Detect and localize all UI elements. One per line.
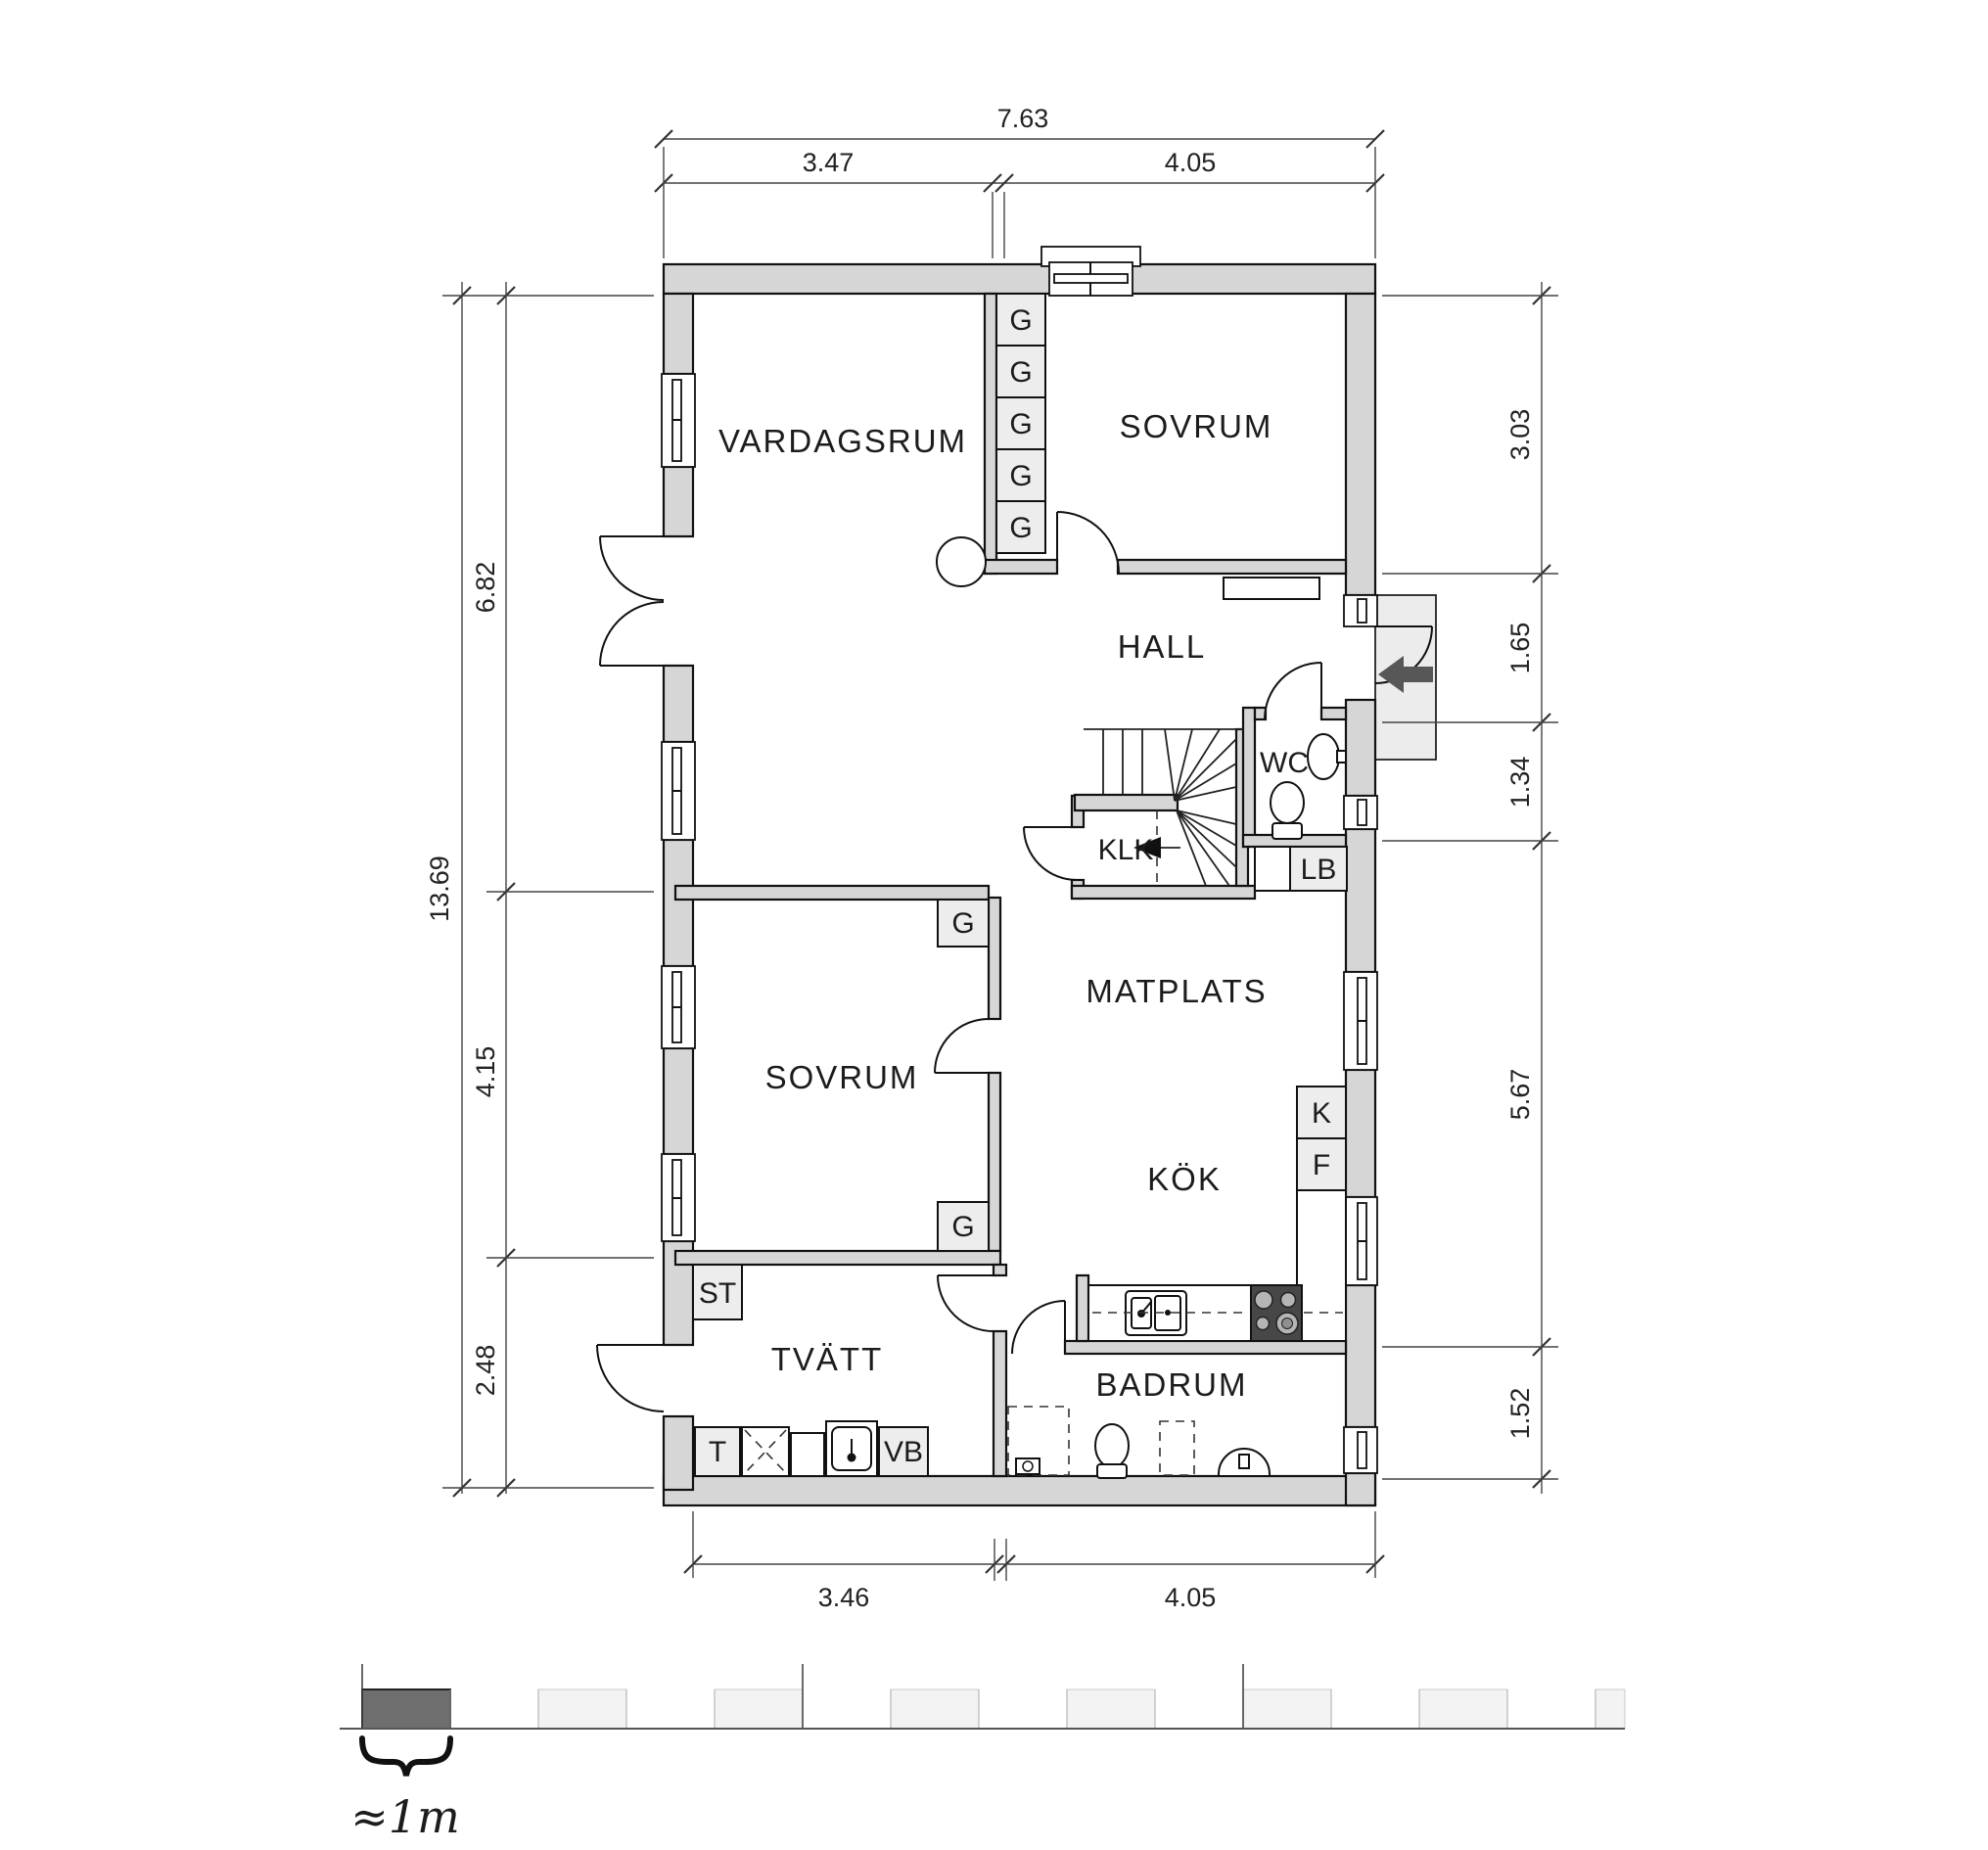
window-icon <box>662 1154 695 1241</box>
wall-segment <box>989 1073 1000 1251</box>
dim-right-seg: 3.03 <box>1505 409 1535 461</box>
wall-segment <box>1072 886 1255 899</box>
door-arc <box>935 1019 989 1073</box>
linen-cabinet-label: LB <box>1301 854 1337 886</box>
wall-segment <box>1118 560 1346 574</box>
wall-segment <box>994 1265 1006 1275</box>
window-icon <box>1344 1427 1377 1473</box>
dim-left-seg: 6.82 <box>471 562 500 614</box>
scale-bar-unit <box>1067 1689 1155 1729</box>
dim-left-overall: 13.69 <box>425 856 454 922</box>
tvatt-exterior-door <box>597 1345 664 1411</box>
window-icon <box>1344 972 1377 1070</box>
wc-sink-icon <box>1308 734 1346 779</box>
dim-left-seg: 4.15 <box>471 1046 500 1098</box>
wall-segment <box>1346 700 1375 796</box>
wall-segment <box>1077 1275 1088 1341</box>
klk-door <box>1024 827 1077 880</box>
room-label-klk: KLK <box>1098 834 1154 866</box>
tvatt-door <box>938 1275 994 1331</box>
wall-segment <box>664 1416 693 1490</box>
wall-segment <box>675 886 989 900</box>
window-icon <box>662 374 695 467</box>
door-arc <box>938 1275 994 1331</box>
window-icon <box>1344 796 1377 829</box>
wardrobe-label: G <box>1009 408 1032 440</box>
laundry-bench <box>791 1433 824 1476</box>
scale-bar-unit <box>891 1689 979 1729</box>
freezer-label: F <box>1313 1149 1330 1181</box>
dim-right-seg: 1.34 <box>1505 757 1535 809</box>
wall-segment <box>1321 708 1346 719</box>
wall-segment <box>1346 1473 1375 1505</box>
scale-bar-unit <box>1595 1689 1625 1729</box>
scale-bar-segments <box>340 1664 1625 1729</box>
closet-label: ST <box>699 1277 736 1310</box>
wardrobe-label: G <box>1009 356 1032 389</box>
room-label-sovrum-bottom: SOVRUM <box>765 1059 919 1095</box>
wall-segment <box>675 1251 1000 1265</box>
room-label-vardagsrum: VARDAGSRUM <box>718 423 967 459</box>
wardrobe-label: G <box>1009 460 1032 492</box>
wall-segment <box>1065 1341 1346 1354</box>
bathroom-toilet-icon <box>1095 1424 1129 1478</box>
wall-segment <box>985 294 996 574</box>
scale-bar-unit-dark <box>362 1689 450 1729</box>
stove-icon <box>1251 1285 1302 1341</box>
washer-icon <box>742 1427 789 1476</box>
door-arc <box>1024 827 1077 880</box>
door-arc <box>597 1345 664 1411</box>
dim-bottom-seg: 4.05 <box>1165 1583 1217 1612</box>
laundry-sink-icon <box>826 1421 877 1476</box>
door-arc <box>1012 1301 1065 1354</box>
room-label-hall: HALL <box>1118 628 1207 665</box>
floor-plan-canvas: G G G G G G G ST LB K F <box>0 0 1988 1850</box>
window-icon <box>662 742 695 840</box>
window-icon <box>1344 1197 1377 1285</box>
wall-segment <box>664 1476 1375 1505</box>
wall-segment <box>1075 795 1178 810</box>
room-label-tvatt: TVÄTT <box>771 1341 884 1377</box>
wardrobe-label: G <box>951 1211 974 1243</box>
dim-right-seg: 1.52 <box>1505 1388 1535 1440</box>
dim-top-overall: 7.63 <box>997 104 1049 133</box>
scale-bar-unit <box>1419 1689 1507 1729</box>
badrum-door <box>1012 1301 1065 1354</box>
bathroom-sink-icon <box>1219 1449 1270 1476</box>
floor-drain-icon <box>1016 1458 1040 1474</box>
cabinet-box <box>1255 847 1290 891</box>
room-label-wc: WC <box>1260 747 1309 779</box>
window-icon <box>662 966 695 1048</box>
wall-segment <box>1243 708 1255 847</box>
hall-shelf <box>1224 578 1319 599</box>
door-arc <box>600 602 664 666</box>
kitchen-counter <box>1297 1190 1346 1341</box>
dim-right-seg: 1.65 <box>1505 623 1535 674</box>
wall-segment <box>1346 294 1375 595</box>
wall-segment <box>994 1331 1006 1476</box>
fridge-label: K <box>1312 1097 1331 1130</box>
scale-bar-unit <box>1243 1689 1331 1729</box>
sovrum-top-door <box>1057 512 1119 574</box>
wall-segment <box>664 467 693 536</box>
scale-bar-unit <box>538 1689 626 1729</box>
wall-segment <box>985 560 1057 574</box>
room-label-badrum: BADRUM <box>1095 1366 1247 1403</box>
appliance-reservation-dashed <box>1160 1421 1194 1475</box>
wardrobe-label: G <box>1009 512 1032 544</box>
wall-segment <box>664 666 693 742</box>
floor-plan-drawing: G G G G G G G ST LB K F <box>0 0 1988 1850</box>
wall-segment <box>664 264 1375 294</box>
wardrobe-label: G <box>951 907 974 940</box>
dim-top-seg: 3.47 <box>803 148 855 177</box>
room-label-matplats: MATPLATS <box>1086 973 1267 1009</box>
wc-door <box>1265 663 1321 719</box>
dryer-label: T <box>709 1436 726 1468</box>
dim-left-seg: 2.48 <box>471 1345 500 1397</box>
chimney-circle <box>937 537 986 586</box>
door-arc <box>1265 663 1321 719</box>
dim-top-seg: 4.05 <box>1165 148 1217 177</box>
dim-bottom-seg: 3.46 <box>818 1583 870 1612</box>
water-heater-label: VB <box>884 1436 923 1468</box>
wall-segment <box>664 294 693 374</box>
sovrum-bottom-door <box>935 1019 989 1073</box>
room-label-sovrum-top: SOVRUM <box>1120 408 1273 444</box>
balcony-double-door <box>600 536 664 666</box>
dim-right-seg: 5.67 <box>1505 1069 1535 1121</box>
scale-bar: ≈1m <box>340 1664 1625 1843</box>
scale-brace-icon <box>362 1738 450 1776</box>
wall-segment <box>664 840 693 966</box>
door-arc <box>600 536 664 600</box>
wardrobe-label: G <box>1009 304 1032 337</box>
wall-segment <box>1346 1070 1375 1197</box>
room-label-kok: KÖK <box>1147 1161 1222 1197</box>
window-icon <box>1041 247 1140 296</box>
wall-segment <box>989 898 1000 1019</box>
scale-bar-label: ≈1m <box>350 1790 459 1843</box>
wall-segment <box>1346 829 1375 972</box>
wall-segment <box>664 1048 693 1154</box>
wc-toilet-icon <box>1271 782 1304 839</box>
wall-segment <box>1346 1285 1375 1427</box>
scale-bar-unit <box>715 1689 803 1729</box>
door-arc <box>1057 512 1119 574</box>
window-icon <box>1344 595 1377 626</box>
